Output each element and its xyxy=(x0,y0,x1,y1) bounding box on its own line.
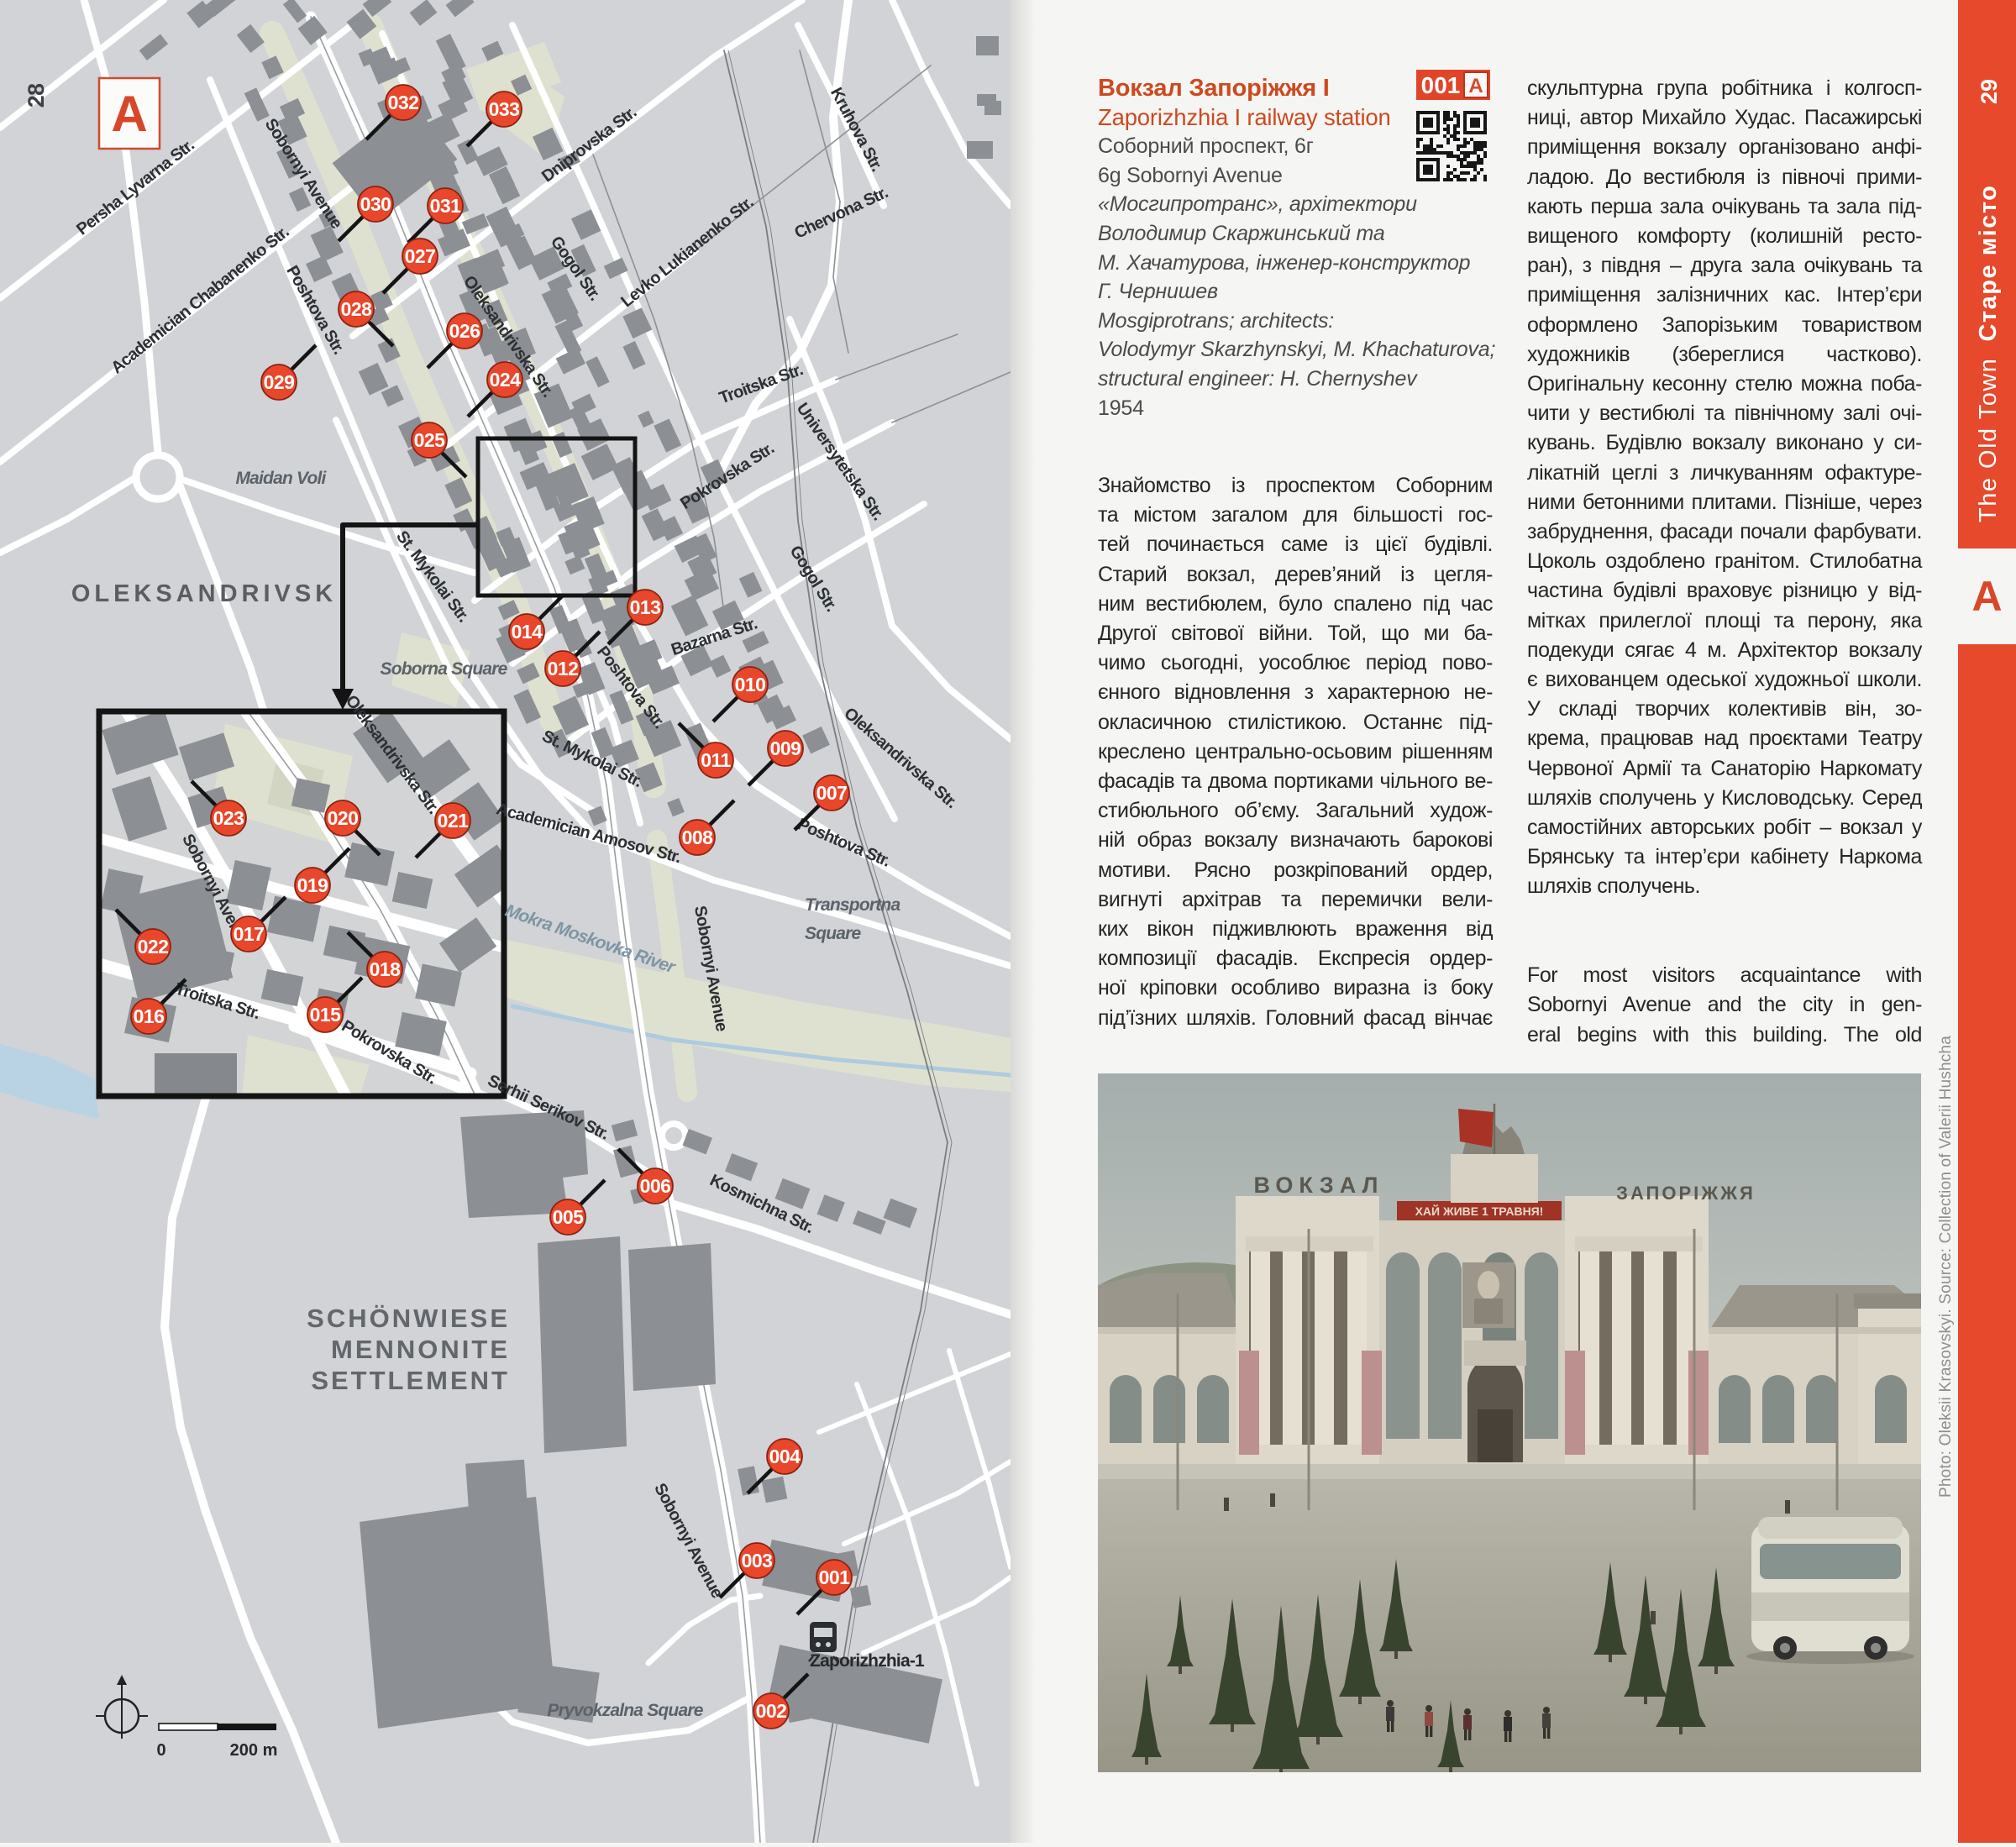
svg-text:031: 031 xyxy=(430,195,462,217)
svg-text:030: 030 xyxy=(360,193,391,215)
svg-text:028: 028 xyxy=(341,298,373,320)
svg-text:ХАЙ ЖИВЕ 1 ТРАВНЯ!: ХАЙ ЖИВЕ 1 ТРАВНЯ! xyxy=(1415,1204,1544,1218)
svg-text:013: 013 xyxy=(630,596,661,618)
svg-text:024: 024 xyxy=(490,369,522,391)
svg-text:010: 010 xyxy=(735,674,766,695)
svg-text:Square: Square xyxy=(805,924,862,943)
svg-text:032: 032 xyxy=(388,92,419,113)
svg-text:ЗАПОРІЖЖЯ: ЗАПОРІЖЖЯ xyxy=(1616,1183,1756,1204)
svg-text:023: 023 xyxy=(213,807,244,829)
svg-text:022: 022 xyxy=(138,936,169,958)
svg-text:28: 28 xyxy=(24,83,49,108)
svg-text:018: 018 xyxy=(370,958,402,980)
svg-text:004: 004 xyxy=(769,1446,801,1467)
svg-text:016: 016 xyxy=(134,1005,165,1027)
svg-text:015: 015 xyxy=(310,1004,342,1026)
svg-text:005: 005 xyxy=(553,1206,585,1228)
svg-text:026: 026 xyxy=(449,320,480,342)
svg-text:0: 0 xyxy=(156,1741,165,1760)
svg-text:020: 020 xyxy=(328,807,359,829)
svg-text:021: 021 xyxy=(438,810,470,832)
svg-text:019: 019 xyxy=(297,874,328,896)
svg-text:A: A xyxy=(1468,75,1483,97)
svg-text:012: 012 xyxy=(548,658,579,680)
svg-text:OLEKSANDRIVSK: OLEKSANDRIVSK xyxy=(71,580,337,607)
svg-text:017: 017 xyxy=(234,923,265,945)
svg-text:SETTLEMENT: SETTLEMENT xyxy=(311,1366,510,1395)
svg-text:027: 027 xyxy=(405,245,436,267)
svg-text:006: 006 xyxy=(640,1175,671,1197)
svg-text:001: 001 xyxy=(819,1566,851,1588)
svg-text:ВОКЗАЛ: ВОКЗАЛ xyxy=(1254,1173,1384,1198)
svg-text:001: 001 xyxy=(1421,72,1461,98)
svg-text:MENNONITE: MENNONITE xyxy=(331,1335,510,1364)
svg-text:002: 002 xyxy=(756,1700,787,1722)
svg-text:025: 025 xyxy=(414,429,446,451)
svg-text:Maidan Voli: Maidan Voli xyxy=(235,469,327,488)
svg-text:009: 009 xyxy=(770,737,801,759)
svg-text:011: 011 xyxy=(701,749,731,771)
svg-text:SCHÖNWIESE: SCHÖNWIESE xyxy=(307,1304,510,1333)
svg-text:200 m: 200 m xyxy=(230,1741,278,1760)
svg-text:Soborna Square: Soborna Square xyxy=(381,659,508,679)
svg-text:029: 029 xyxy=(264,371,295,393)
svg-text:Pryvokzalna Square: Pryvokzalna Square xyxy=(547,1701,703,1720)
svg-text:008: 008 xyxy=(682,826,714,848)
svg-text:Zaporizhzhia-1: Zaporizhzhia-1 xyxy=(810,1651,925,1671)
svg-text:A: A xyxy=(111,86,147,142)
svg-text:Transportna: Transportna xyxy=(805,895,900,915)
svg-text:033: 033 xyxy=(489,98,520,120)
svg-text:003: 003 xyxy=(742,1550,773,1572)
svg-text:014: 014 xyxy=(512,621,543,643)
svg-text:007: 007 xyxy=(816,782,848,804)
